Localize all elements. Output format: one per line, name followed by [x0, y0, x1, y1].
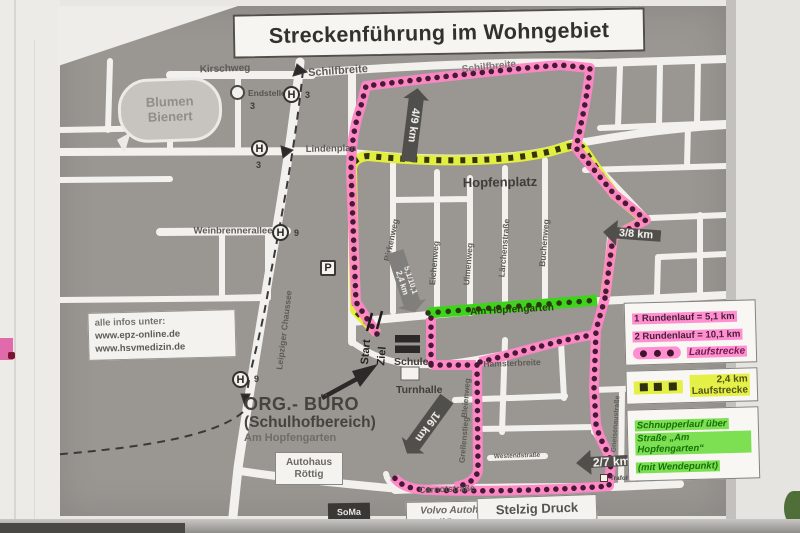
autohaus-roettig-sign: Autohaus Röttig	[275, 452, 343, 485]
photo-of-route-map: Streckenführung im Wohngebiet KirschwegS…	[0, 0, 800, 533]
bus-stop-icon: H	[251, 140, 268, 157]
bus-line-number: 3	[256, 160, 261, 170]
photo-bottom-edge	[0, 523, 185, 533]
legend-pink-cell: 1 Rundenlauf = 5,1 km 2 Rundenlauf = 10,…	[624, 299, 758, 365]
street-label-hopfenplatz: Hopfenplatz	[463, 174, 538, 190]
legend-yellow-line2: Laufstrecke	[690, 384, 750, 397]
info-box: alle infos unter: www.epz-online.de www.…	[87, 309, 236, 361]
bus-stop-icon: H	[283, 86, 300, 103]
street-label-weinbrennerallee: Weinbrennerallee	[193, 226, 272, 237]
route-legend: 1 Rundenlauf = 5,1 km 2 Rundenlauf = 10,…	[624, 299, 761, 486]
legend-green-line3: (mit Wendepunkt)	[636, 460, 720, 473]
bus-line-number: 3	[305, 90, 310, 100]
bus-line-number: 9	[294, 228, 299, 238]
street-label-carnotstrasse: Carnotstraße	[419, 483, 475, 495]
ziel-label: Ziel	[375, 346, 389, 366]
paper-corner	[58, 6, 238, 66]
street-label-lindenplan: Lindenplan	[306, 143, 357, 155]
parking-icon: P	[320, 260, 336, 276]
start-label: Start	[359, 339, 373, 365]
legend-green-line1: Schnupperlauf über	[635, 418, 729, 431]
info-url-2: www.hsvmedizin.de	[95, 340, 229, 356]
legend-yellow-cell: 2,4 km Laufstrecke	[625, 367, 758, 404]
tram-terminus-icon	[230, 85, 245, 100]
paper-margin-left	[0, 0, 60, 533]
endstelle-line-number: 3	[250, 101, 255, 111]
street-label-kirschweg: Kirschweg	[200, 63, 251, 76]
legend-pink-line1: 1 Rundenlauf = 5,1 km	[632, 311, 737, 325]
photo-artifact	[0, 338, 13, 360]
bus-line-number: 9	[254, 374, 259, 384]
legend-pink-label: Laufstrecke	[687, 345, 747, 358]
bus-stop-icon: H	[272, 224, 289, 241]
bus-stop-icon: H	[232, 371, 249, 388]
blumen-bienert-sign: Blumen Bienert	[117, 76, 223, 144]
org-buero-arrow	[322, 364, 378, 398]
street-label-hamsterbreite: Hamsterbreite	[483, 357, 540, 369]
trafohaus-icon	[600, 474, 608, 482]
soma-sign: SoMa	[328, 503, 370, 521]
blumen-line2: Bienert	[148, 109, 193, 125]
legend-green-line2: Straße „Am Hopfengarten“	[635, 430, 752, 455]
endstelle-label: Endstelle	[248, 88, 286, 98]
turnhalle-label: Turnhalle	[396, 384, 442, 396]
schule-label: Schule	[394, 356, 428, 368]
yellow-route-sample-icon	[634, 380, 683, 394]
legend-green-cell: Schnupperlauf über Straße „Am Hopfengart…	[626, 406, 760, 481]
org-buero-text: ORG.- BÜRO (Schulhofbereich) Am Hopfenga…	[244, 394, 376, 444]
pink-route-sample-icon	[633, 346, 681, 359]
map-title: Streckenführung im Wohngebiet	[233, 7, 646, 58]
legend-pink-line2: 2 Rundenlauf = 10,1 km	[632, 329, 742, 343]
